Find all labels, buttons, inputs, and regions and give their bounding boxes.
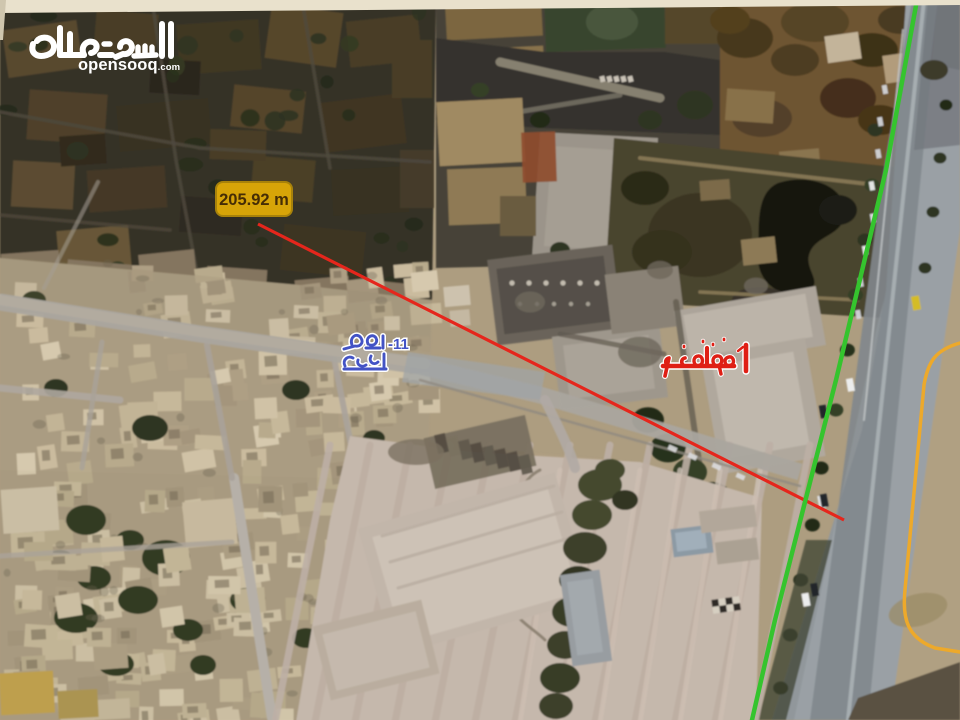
svg-text:205.92 m: 205.92 m (219, 191, 289, 209)
svg-text:-11: -11 (388, 336, 409, 353)
